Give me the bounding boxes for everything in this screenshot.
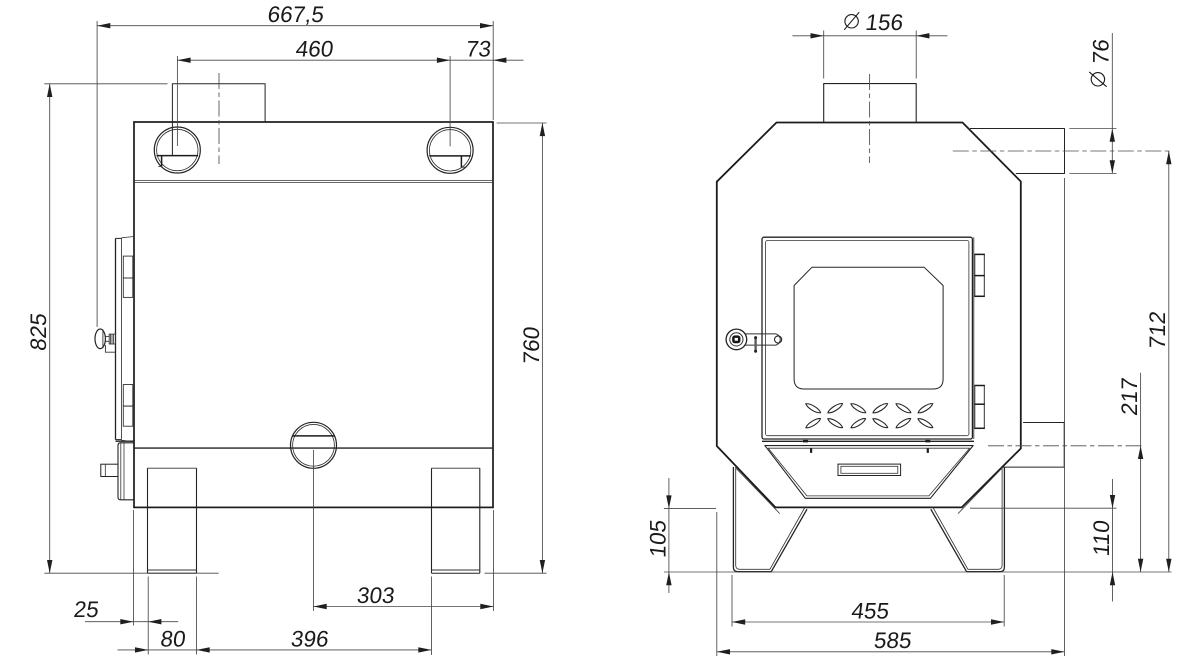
svg-text:73: 73 [465,37,493,62]
svg-text:760: 760 [519,325,544,366]
svg-text:80: 80 [159,626,187,651]
svg-text:460: 460 [294,37,335,62]
svg-text:110: 110 [1089,519,1114,558]
svg-text:105: 105 [645,518,670,559]
svg-text:455: 455 [850,598,891,623]
svg-text:712: 712 [1145,310,1170,351]
svg-text:303: 303 [356,583,397,608]
svg-text:156: 156 [864,10,905,35]
svg-text:667,5: 667,5 [266,2,325,27]
svg-text:76: 76 [1089,38,1114,66]
svg-text:585: 585 [873,628,914,653]
svg-text:217: 217 [1117,376,1142,417]
svg-text:396: 396 [290,626,331,651]
svg-text:825: 825 [26,312,51,353]
svg-text:25: 25 [72,597,100,622]
